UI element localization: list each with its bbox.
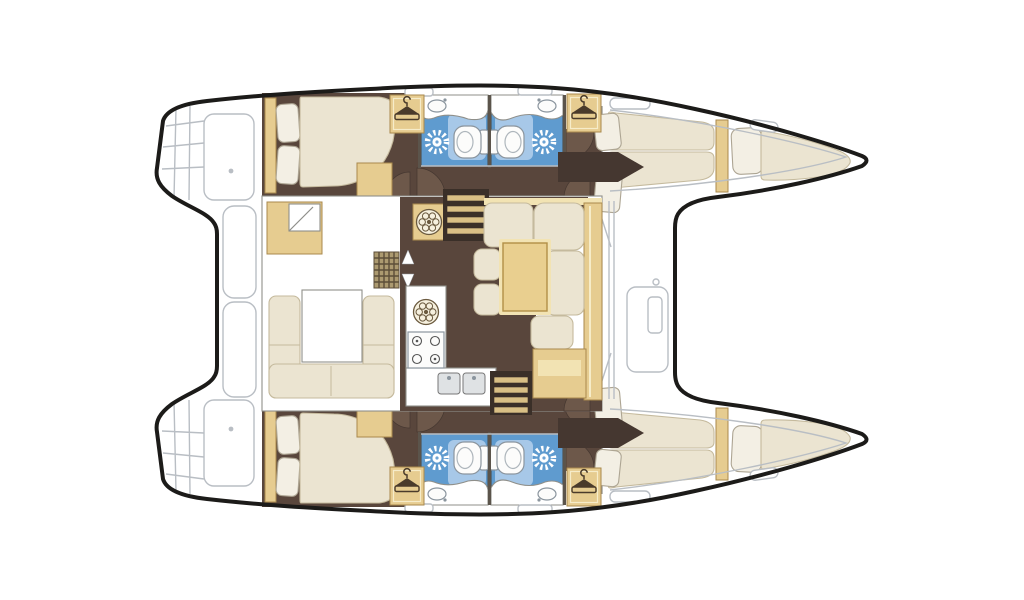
catamaran-floor-plan — [0, 0, 1024, 600]
dining-table — [503, 243, 547, 311]
sofa-cushion — [531, 316, 573, 349]
saloon — [262, 189, 602, 415]
round-sink — [414, 300, 439, 325]
hanging-locker-stbd-aft — [390, 467, 424, 505]
sideboard — [584, 203, 602, 400]
stove — [408, 332, 444, 368]
sofa-table — [302, 290, 362, 362]
nav-station — [267, 202, 322, 254]
mast-beam-lines — [609, 201, 614, 399]
bench-detail — [538, 360, 581, 376]
hanging-locker-port-aft — [390, 95, 424, 133]
hanging-locker-stbd-fwd — [567, 468, 601, 506]
floor-grid-hatch — [374, 252, 399, 288]
foredeck — [600, 201, 668, 399]
stool — [474, 249, 501, 280]
floor-plan-svg — [0, 0, 1024, 600]
u-shaped-sofa — [269, 290, 394, 398]
stool — [474, 284, 501, 315]
deck-fitting — [653, 279, 659, 285]
aft-cockpit — [223, 206, 256, 397]
companionway-stairs-starboard — [490, 371, 532, 415]
hanging-locker-port-fwd — [567, 94, 601, 132]
cockpit-bench-outline — [223, 206, 256, 298]
cockpit-bench-outline — [223, 302, 256, 397]
companionway-stairs-port — [443, 189, 489, 241]
sofa-cushion — [546, 251, 584, 315]
